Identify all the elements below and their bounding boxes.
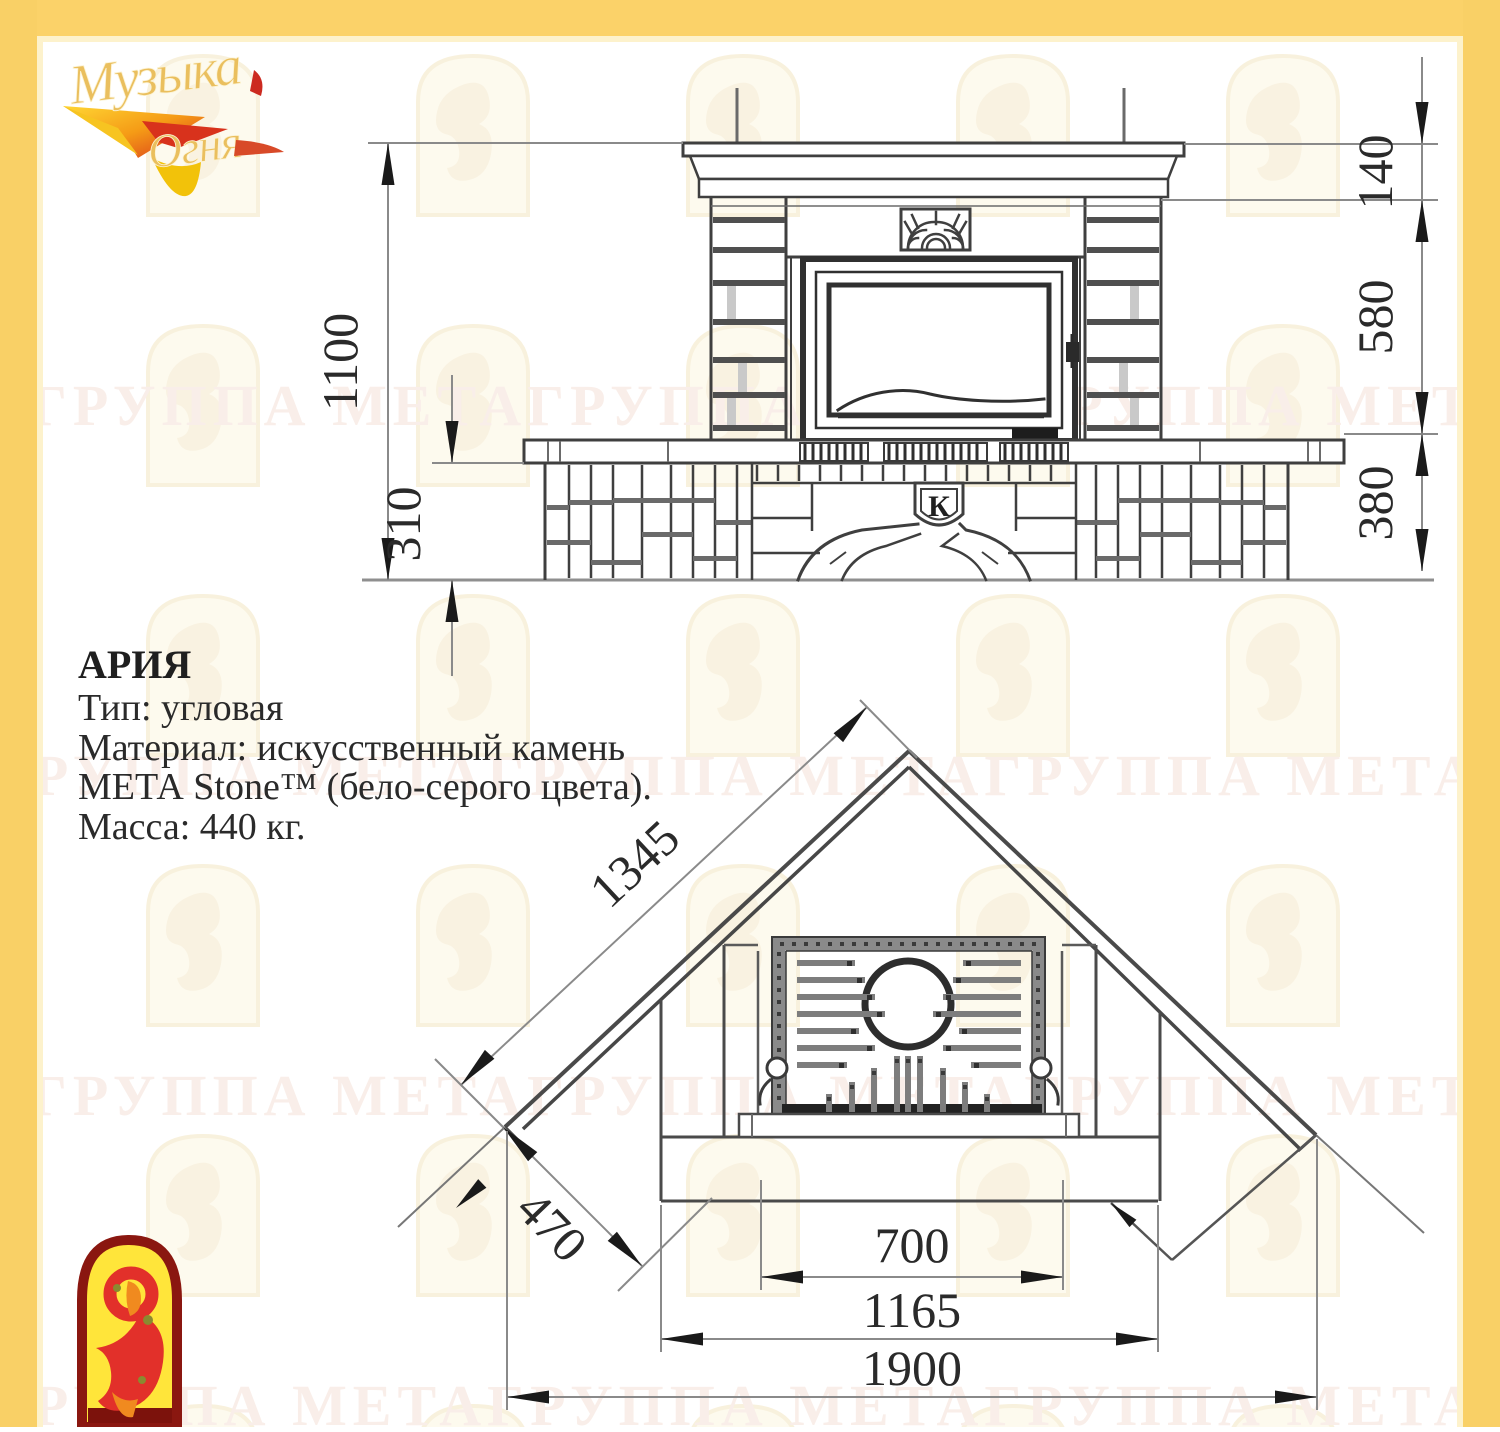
svg-text:Тип: угловая: Тип: угловая [78,687,283,729]
svg-text:140: 140 [1347,135,1403,210]
svg-text:1165: 1165 [863,1282,961,1338]
svg-text:310: 310 [375,487,431,562]
svg-text:580: 580 [1347,280,1403,355]
svg-text:1100: 1100 [312,313,368,411]
svg-text:Материал: искусственный камень: Материал: искусственный камень [78,727,625,769]
svg-text:380: 380 [1347,466,1403,541]
svg-text:ГРУППА МЕТАГРУППА МЕТАГРУППА М: ГРУППА МЕТАГРУППА МЕТАГРУППА МЕТА [0,1373,1482,1427]
svg-text:К: К [928,490,950,523]
svg-text:1900: 1900 [862,1340,962,1396]
svg-text:МЕТА Stone™ (бело-серого цвета: МЕТА Stone™ (бело-серого цвета). [78,766,652,808]
svg-text:700: 700 [875,1217,950,1273]
svg-text:АРИЯ: АРИЯ [78,642,191,687]
svg-text:Масса: 440 кг.: Масса: 440 кг. [78,806,306,848]
